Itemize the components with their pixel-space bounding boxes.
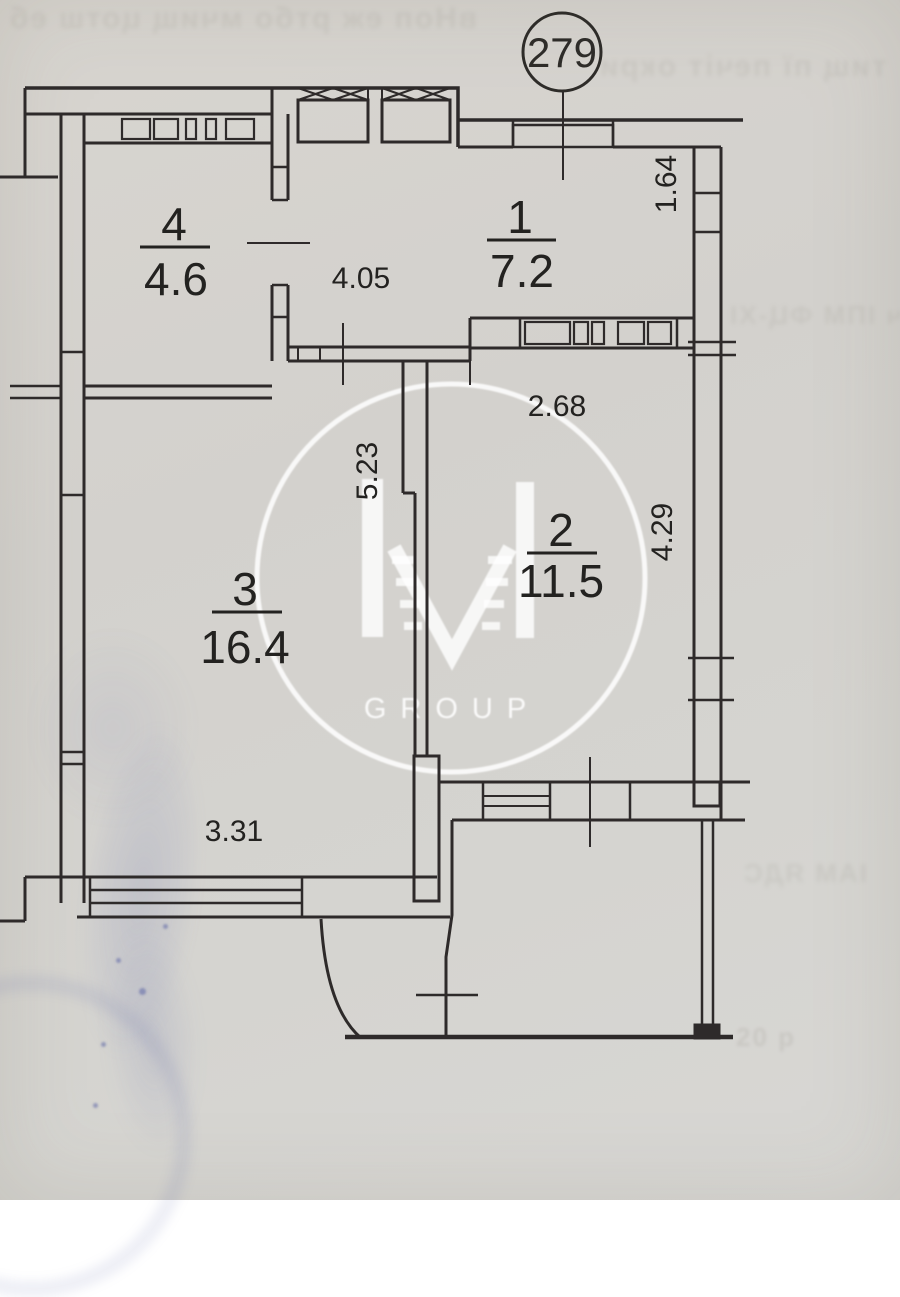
dimension-labels: 4.05 2.68 3.31 1.64 5.23 4.29 <box>205 155 683 848</box>
room1-area: 7.2 <box>490 245 554 297</box>
plumbing-wall <box>414 756 439 901</box>
room2-area: 11.5 <box>518 555 604 607</box>
room3-window-lines <box>90 890 302 903</box>
room4-number: 4 <box>161 198 187 250</box>
room3-area: 16.4 <box>200 621 290 673</box>
room4-area: 4.6 <box>144 253 208 305</box>
room4-window-panes <box>122 119 254 139</box>
right-wall-pier <box>694 193 721 232</box>
left-wall-joints <box>61 352 84 764</box>
room4-label: 4 4.6 <box>140 198 210 305</box>
bathroom-wall-sill <box>483 796 550 806</box>
room3-number: 3 <box>232 563 258 615</box>
vent-shaft-right <box>382 100 450 142</box>
room4-bottom-wall <box>84 386 272 398</box>
room3-label: 3 16.4 <box>200 563 290 673</box>
watermark-group-text: GROUP <box>364 693 540 725</box>
dim-room2-height: 4.29 <box>646 503 679 561</box>
apartment-number-marker: 279 <box>523 13 601 91</box>
bathroom-right-wall <box>702 820 713 1025</box>
hall-bottom-wall <box>288 347 470 361</box>
room1-number: 1 <box>507 191 533 243</box>
room1-label: 1 7.2 <box>487 191 556 297</box>
floor-plan-drawing: GROUP <box>0 0 900 1200</box>
divider-window-panes <box>525 322 671 344</box>
dim-room2-width: 2.68 <box>528 390 586 423</box>
bathroom-wall-dividers <box>483 782 630 820</box>
exterior-wall-right <box>694 147 721 820</box>
bottom-left-corner <box>0 877 25 921</box>
dim-partition-length: 5.23 <box>351 442 384 500</box>
bathroom-duct-notch <box>694 782 720 806</box>
bathroom-wall-footing <box>695 1025 719 1038</box>
room2-number: 2 <box>548 504 574 556</box>
dim-hall-width: 4.05 <box>332 262 390 295</box>
hall-wall-axis-ticks <box>343 318 470 385</box>
hall-wall-jamb <box>298 347 320 361</box>
room4-right-wall <box>272 88 288 361</box>
dim-room3-bottom-width: 3.31 <box>205 815 263 848</box>
vent-shaft-hatch <box>298 88 450 100</box>
curved-wall <box>321 919 361 1038</box>
neighbor-wall-stub-mid <box>10 386 61 398</box>
room1-room2-divider <box>470 318 694 361</box>
dim-top-right-vertical: 1.64 <box>650 155 683 213</box>
scanned-paper: вНоп еж ртбо мчищ цотш еб тищ пї печіт о… <box>0 0 900 1200</box>
room3-window-frame <box>90 877 302 917</box>
exterior-wall-left <box>61 114 84 903</box>
vent-shaft-left <box>298 100 368 142</box>
apartment-number: 279 <box>527 29 597 76</box>
watermark-bar-left <box>362 479 383 637</box>
bathroom-left-wall <box>446 820 452 1037</box>
